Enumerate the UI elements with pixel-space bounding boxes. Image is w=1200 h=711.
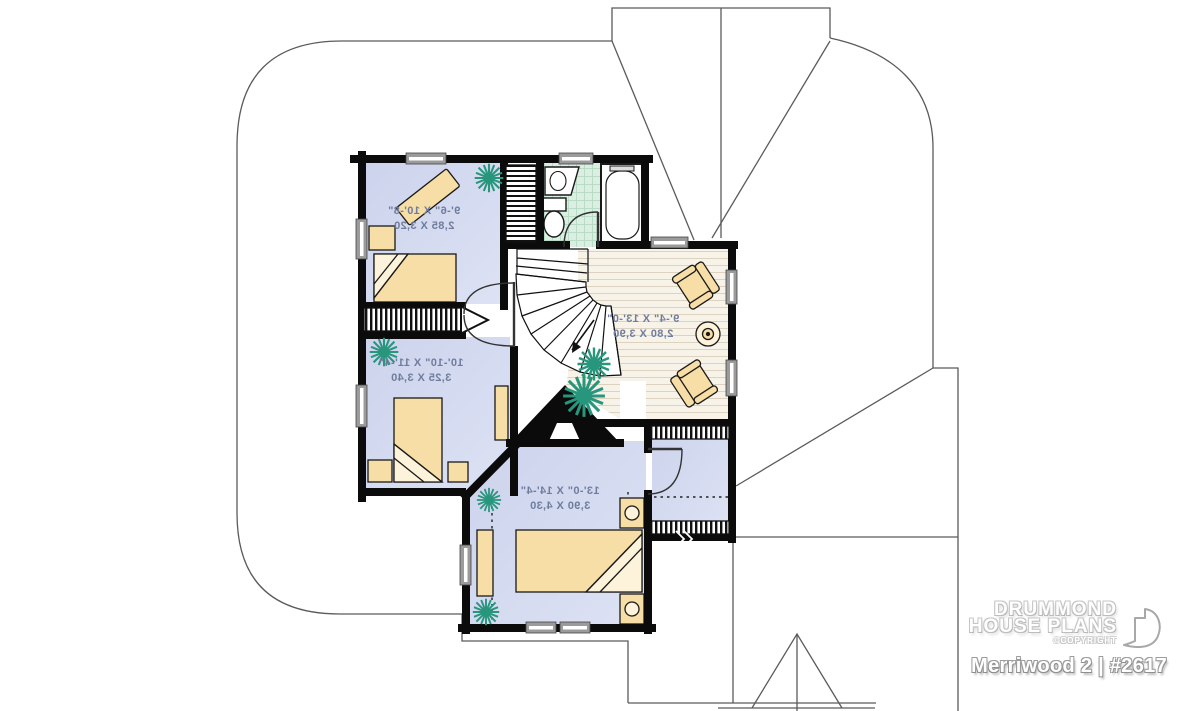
dimension-imperial: 9'-6" X 10'-8": [349, 204, 499, 219]
brand-name-line2: HOUSE PLANS: [969, 618, 1117, 635]
room-dimensions-sitting-area: 9'-4" X 13'-0" 2,80 X 3,90: [568, 312, 718, 342]
title-block: DRUMMOND HOUSE PLANS ©COPYRIGHT Merriwoo…: [969, 601, 1167, 678]
plant-icon: [578, 348, 611, 381]
plant-icon: [473, 599, 499, 625]
plant-icon: [475, 164, 504, 193]
floor-plan-page: 9'-6" X 10'-8" 2,85 X 3,20 10'-10" X 11'…: [0, 0, 1200, 711]
dimension-metric: 3,25 X 3,40: [346, 371, 496, 386]
dimension-metric: 3,90 X 4,30: [485, 499, 635, 514]
dimension-imperial: 10'-10" X 11'-4": [346, 356, 496, 371]
dimension-metric: 2,85 X 3,20: [349, 219, 499, 234]
room-dimensions-bedroom-1: 9'-6" X 10'-8" 2,85 X 3,20: [349, 204, 499, 234]
plant-icon: [563, 375, 605, 417]
room-dimensions-master-bedroom: 13'-0" X 14'-4" 3,90 X 4,30: [485, 484, 635, 514]
copyright-text: ©COPYRIGHT: [969, 636, 1117, 645]
room-dimensions-bedroom-2: 10'-10" X 11'-4" 3,25 X 3,40: [346, 356, 496, 386]
dimension-metric: 2,80 X 3,90: [568, 327, 718, 342]
plan-title: Merriwood 2 | #2617: [969, 655, 1167, 678]
dimension-imperial: 13'-0" X 14'-4": [485, 484, 635, 499]
drummond-logo-icon: [1121, 601, 1167, 651]
dimension-imperial: 9'-4" X 13'-0": [568, 312, 718, 327]
